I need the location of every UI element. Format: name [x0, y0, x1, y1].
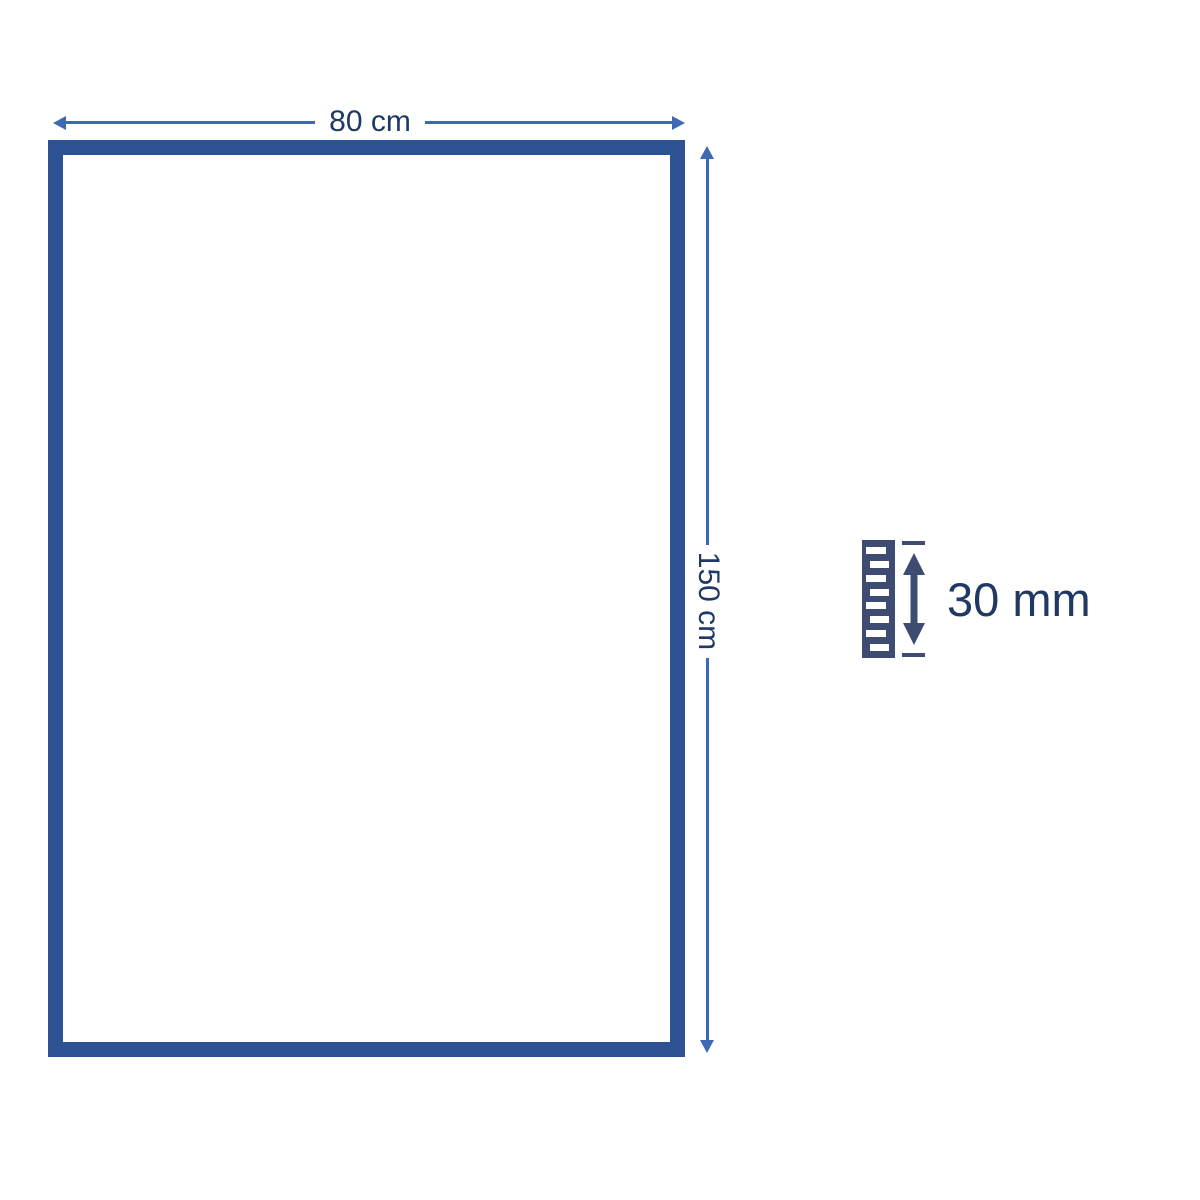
pile-stripe	[866, 630, 886, 637]
pile-stripe	[870, 589, 889, 596]
height-label: 150 cm	[690, 521, 726, 681]
arrow-right-icon	[672, 116, 685, 130]
arrow-down-icon	[700, 1040, 714, 1053]
pile-stripe	[870, 616, 889, 623]
width-label: 80 cm	[315, 104, 425, 140]
pile-stripe	[870, 561, 889, 568]
width-dimension-line-left	[62, 121, 315, 124]
pile-height-stripes-icon	[862, 540, 895, 658]
height-dimension-line-top	[706, 155, 709, 545]
width-dimension-line-right	[425, 121, 676, 124]
product-outline	[48, 140, 685, 1057]
pile-stripe	[866, 575, 886, 582]
thickness-label: 30 mm	[947, 572, 1091, 628]
vertical-double-arrow-icon	[903, 553, 925, 645]
dimension-diagram: 80 cm 150 cm 30 mm	[0, 0, 1200, 1200]
pile-stripe	[866, 547, 886, 554]
pile-stripe	[866, 602, 886, 609]
tick-bottom	[902, 653, 925, 657]
height-dimension-line-bottom	[706, 658, 709, 1042]
pile-stripe	[870, 644, 889, 651]
tick-top	[902, 541, 925, 545]
